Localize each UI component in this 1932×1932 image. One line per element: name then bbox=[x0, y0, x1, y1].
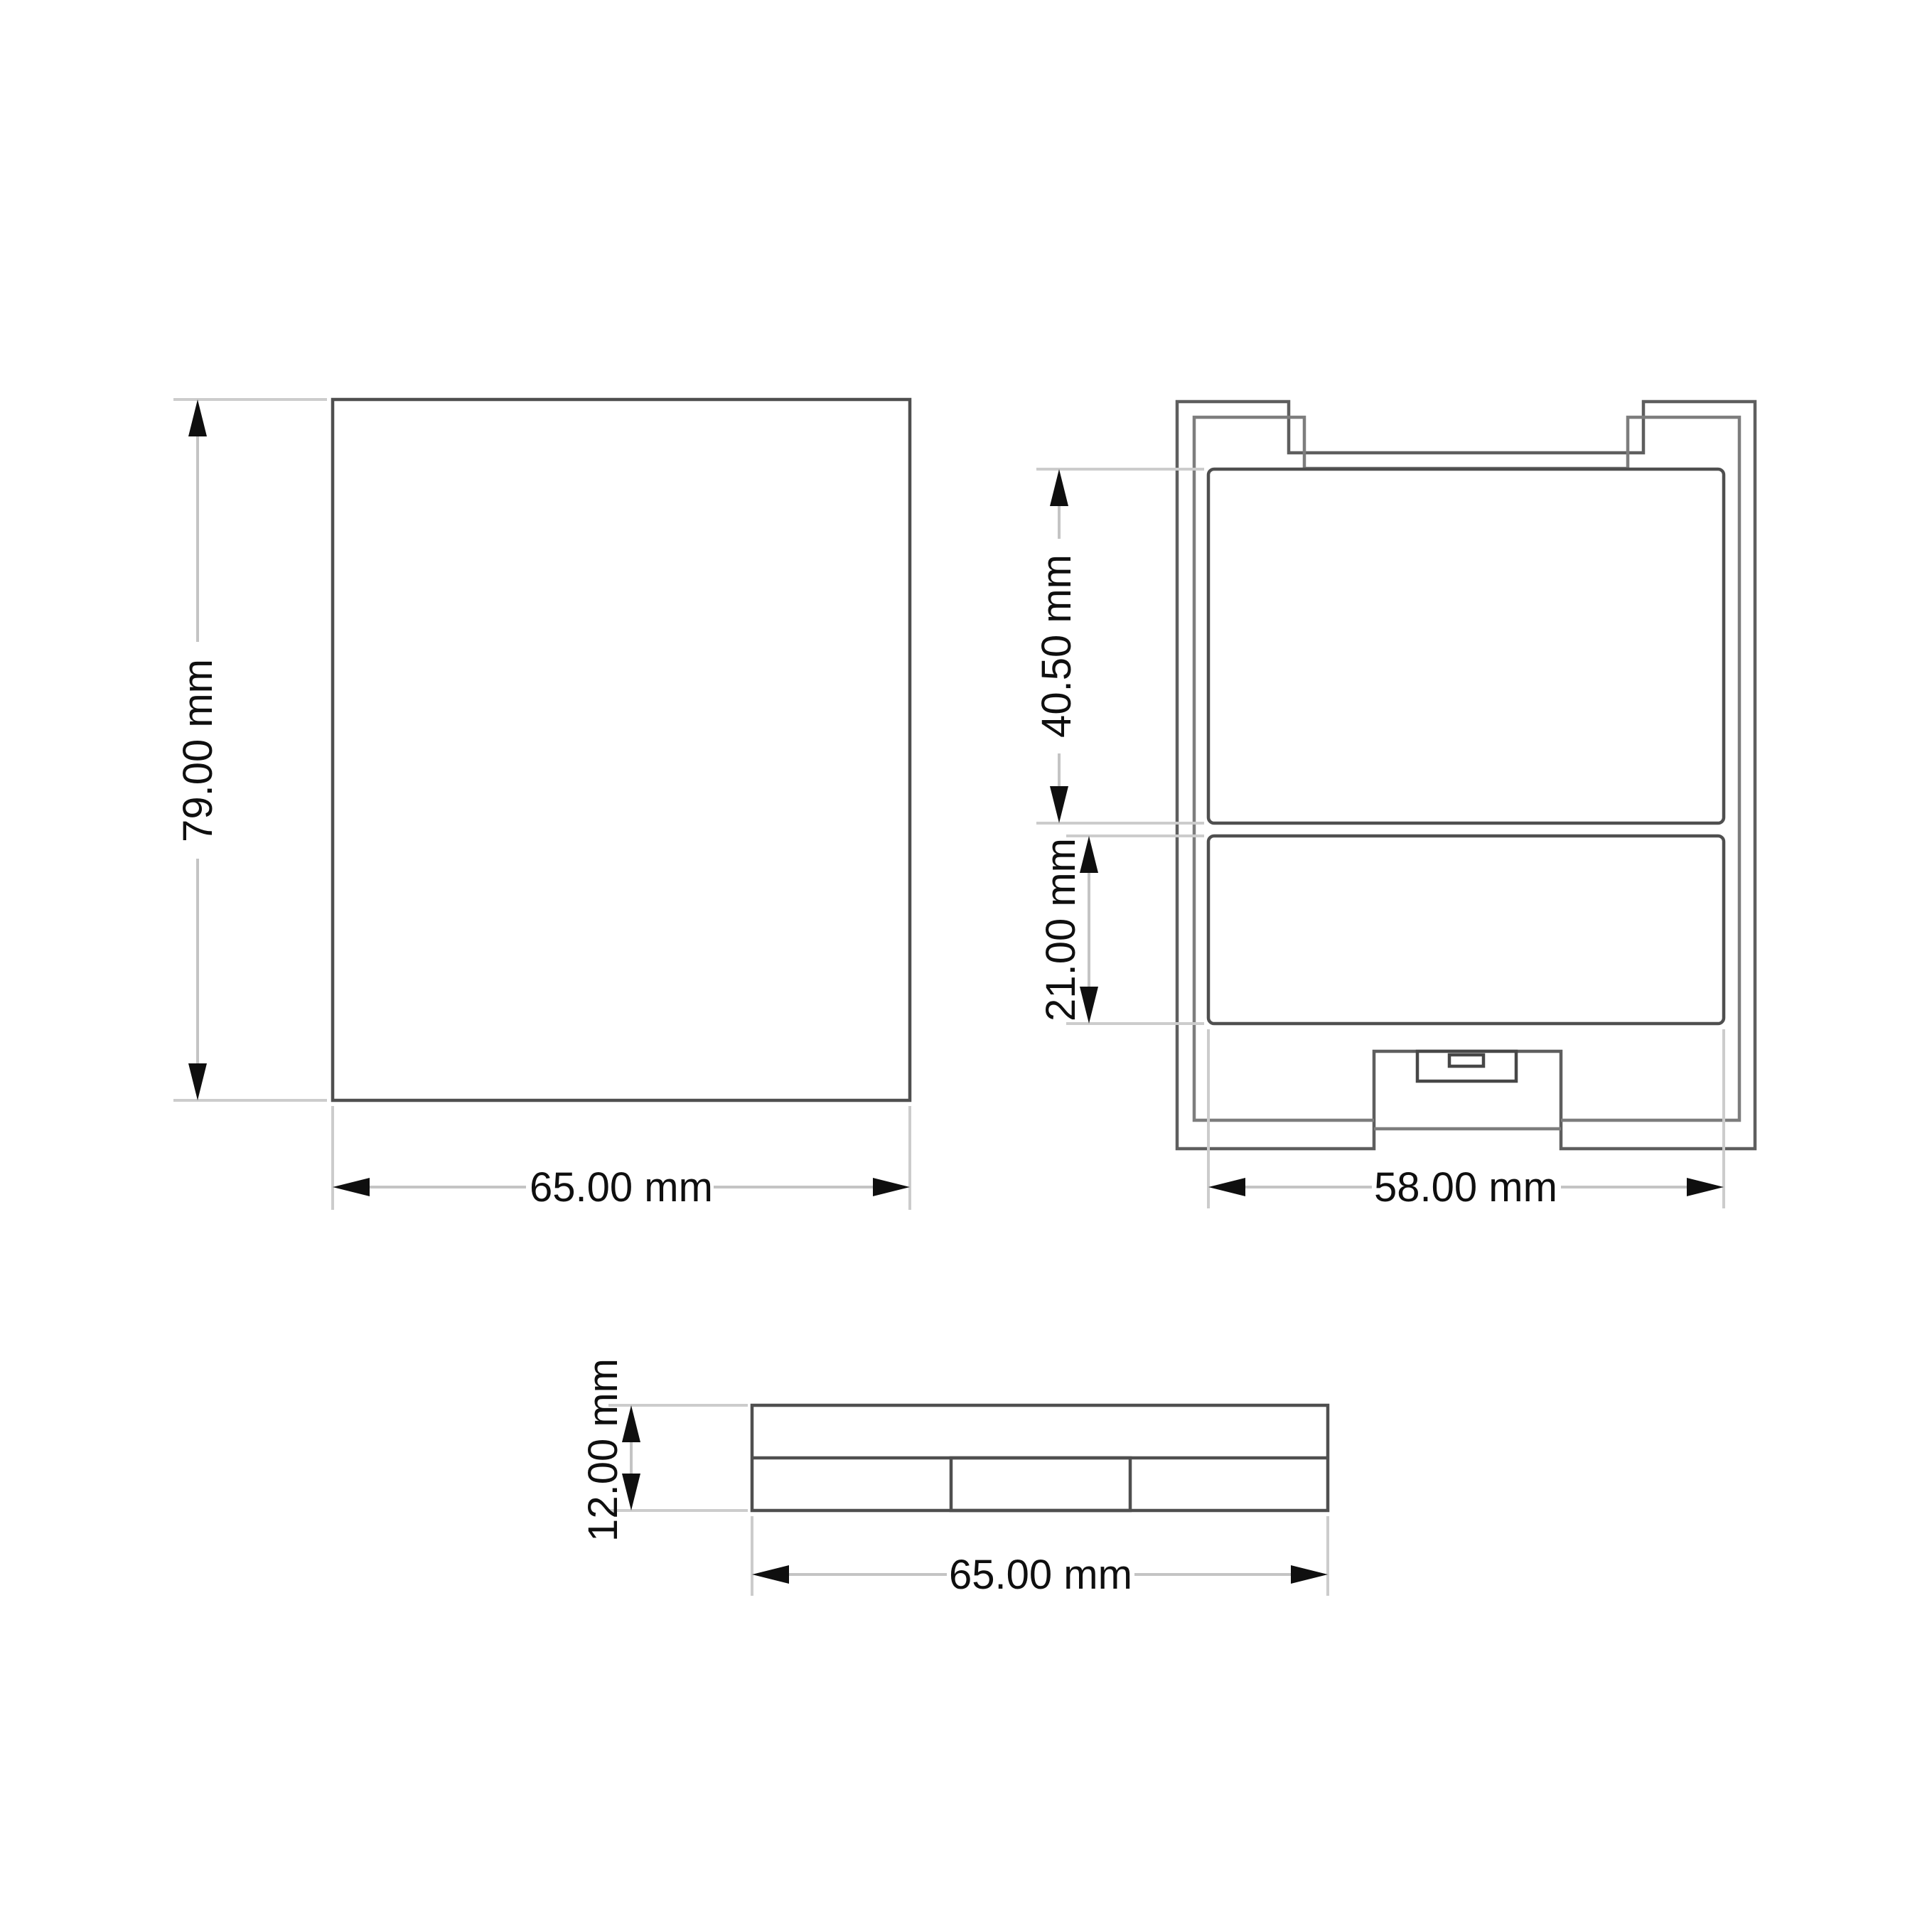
side-width-dimension: 65.00 mm bbox=[752, 1516, 1328, 1598]
rear-outer-contour bbox=[1177, 402, 1755, 1149]
rear-view: 40.50 mm 21.00 mm 58.00 mm bbox=[1034, 402, 1755, 1211]
arrowhead-down bbox=[1050, 786, 1068, 823]
din-latch-tab bbox=[1449, 1055, 1483, 1066]
front-height-dimension: 79.00 mm bbox=[173, 399, 327, 1100]
rear-inner-contour bbox=[1194, 417, 1739, 1120]
arrowhead-right bbox=[1687, 1178, 1724, 1196]
front-width-label: 65.00 mm bbox=[530, 1164, 713, 1211]
rear-upper-label: 40.50 mm bbox=[1034, 554, 1080, 738]
side-latch-slot bbox=[951, 1458, 1130, 1510]
enclosure-dimension-drawing: 79.00 mm 65.00 mm bbox=[0, 0, 1932, 1932]
side-view: 12.00 mm 65.00 mm bbox=[580, 1358, 1328, 1598]
rear-lower-dimension: 21.00 mm bbox=[1038, 836, 1204, 1024]
rear-lower-panel bbox=[1208, 836, 1724, 1024]
rear-width-label: 58.00 mm bbox=[1374, 1164, 1557, 1211]
arrowhead-down bbox=[188, 1063, 207, 1100]
arrowhead-up bbox=[1050, 469, 1068, 506]
arrowhead-up bbox=[188, 399, 207, 436]
front-face-outline bbox=[333, 399, 910, 1100]
arrowhead-left bbox=[752, 1565, 789, 1584]
rear-lower-label: 21.00 mm bbox=[1038, 838, 1084, 1021]
arrowhead-right bbox=[1291, 1565, 1328, 1584]
rear-upper-panel bbox=[1208, 469, 1724, 823]
arrowhead-left bbox=[333, 1178, 370, 1196]
arrowhead-left bbox=[1208, 1178, 1245, 1196]
front-height-label: 79.00 mm bbox=[175, 659, 221, 842]
side-height-dimension: 12.00 mm bbox=[580, 1358, 748, 1542]
side-width-label: 65.00 mm bbox=[949, 1552, 1132, 1598]
technical-drawing-page: 79.00 mm 65.00 mm bbox=[0, 0, 1932, 1932]
front-width-dimension: 65.00 mm bbox=[333, 1106, 910, 1211]
side-height-label: 12.00 mm bbox=[580, 1358, 626, 1542]
arrowhead-right bbox=[873, 1178, 910, 1196]
front-view: 79.00 mm 65.00 mm bbox=[173, 399, 910, 1211]
